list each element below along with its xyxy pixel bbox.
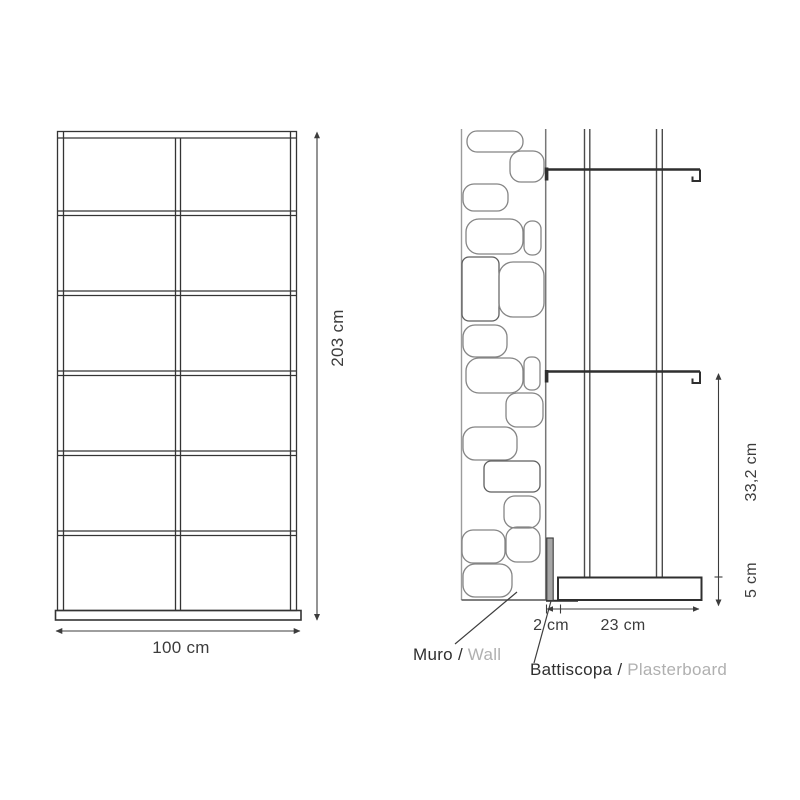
wall-bracket-bottom bbox=[545, 370, 700, 383]
front-elevation-drawing bbox=[56, 132, 302, 621]
wall-gap-dimension-label: 2 cm bbox=[533, 617, 569, 635]
width-dimension-label: 100 cm bbox=[152, 638, 210, 658]
width-dimension-line bbox=[56, 628, 301, 634]
dimension-diagram: 203 cm 100 cm 33,2 cm 5 cm 2 cm 23 cm Mu… bbox=[0, 0, 800, 800]
base-height-dimension-label: 5 cm bbox=[743, 562, 761, 598]
shelf-lines bbox=[58, 211, 297, 536]
side-section-drawing bbox=[455, 129, 702, 663]
base-depth-dimension-label: 23 cm bbox=[600, 617, 645, 635]
wall-label-english: Wall bbox=[468, 645, 502, 664]
skirting-label-english: Plasterboard bbox=[627, 660, 727, 679]
shelf-uprights bbox=[585, 129, 663, 577]
wall-section bbox=[462, 129, 547, 601]
wall-label-italian: Muro / bbox=[413, 645, 463, 664]
height-dimension-label: 203 cm bbox=[328, 309, 348, 367]
span-dimension-line bbox=[715, 373, 723, 606]
height-dimension-line bbox=[314, 132, 320, 621]
skirting-label-italian: Battiscopa / bbox=[530, 660, 622, 679]
depth-dimension-line bbox=[547, 605, 700, 614]
shelf-span-dimension-label: 33,2 cm bbox=[743, 442, 761, 501]
wall-stones bbox=[462, 131, 544, 597]
wall-label: Muro /Wall bbox=[413, 645, 501, 665]
skirting-board bbox=[547, 538, 553, 601]
front-dimension-lines bbox=[56, 132, 321, 635]
cabinet-base bbox=[56, 611, 302, 621]
wall-bracket-top bbox=[545, 168, 700, 182]
skirting-label: Battiscopa /Plasterboard bbox=[530, 660, 727, 680]
diagram-canvas bbox=[0, 0, 800, 800]
base-plinth-side bbox=[558, 578, 702, 601]
